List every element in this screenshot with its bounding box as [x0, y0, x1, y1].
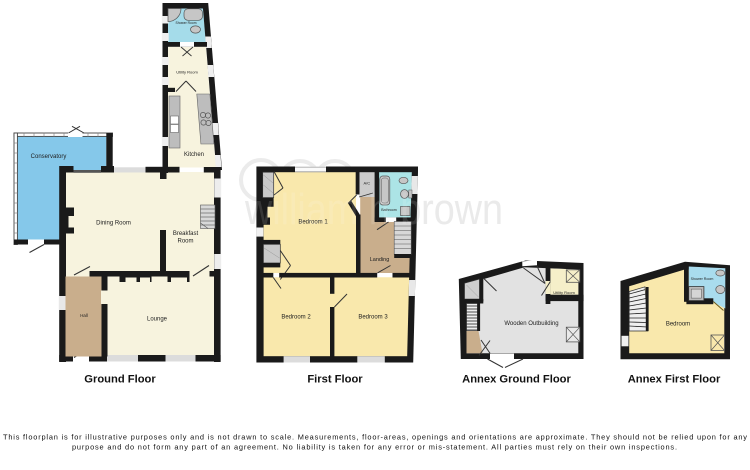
svg-text:Ground Floor: Ground Floor — [84, 374, 156, 386]
svg-text:Annex First Floor: Annex First Floor — [628, 374, 721, 386]
svg-text:Bedroom 2: Bedroom 2 — [281, 315, 311, 321]
svg-text:william h brown: william h brown — [244, 185, 503, 234]
svg-text:Shower Room: Shower Room — [176, 21, 197, 25]
svg-text:Conservatory: Conservatory — [31, 154, 67, 160]
svg-text:Hall: Hall — [80, 313, 88, 318]
svg-text:Landing: Landing — [370, 257, 390, 263]
svg-text:Dining Room: Dining Room — [96, 221, 131, 227]
svg-text:First Floor: First Floor — [307, 374, 363, 386]
svg-text:Room: Room — [177, 239, 193, 245]
svg-text:Lounge: Lounge — [147, 317, 168, 323]
svg-text:This floorplan is for illustra: This floorplan is for illustrative purpo… — [3, 432, 747, 441]
svg-text:Kitchen: Kitchen — [184, 152, 204, 158]
svg-text:Utility Room: Utility Room — [553, 290, 575, 295]
svg-text:Bedroom: Bedroom — [666, 322, 690, 328]
svg-text:Bedroom 3: Bedroom 3 — [358, 315, 388, 321]
svg-text:Shower Room: Shower Room — [691, 277, 714, 281]
svg-text:Utility Room: Utility Room — [176, 70, 198, 75]
svg-text:Breakfast: Breakfast — [173, 231, 199, 237]
svg-text:purpose and do not form any pa: purpose and do not form any part of an a… — [72, 442, 677, 451]
svg-text:Wooden Outbuilding: Wooden Outbuilding — [504, 321, 558, 327]
svg-text:Annex Ground Floor: Annex Ground Floor — [462, 374, 571, 386]
